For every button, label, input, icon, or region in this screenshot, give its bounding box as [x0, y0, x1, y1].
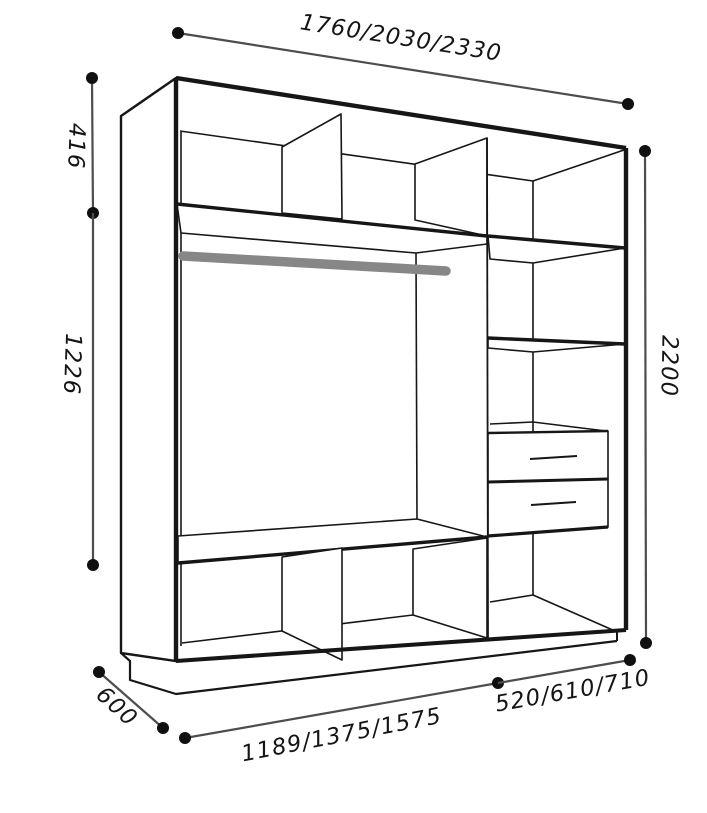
partition-front-edge — [487, 138, 488, 638]
drawer-1-front — [488, 431, 608, 482]
dim-dot — [86, 72, 98, 84]
drawer-top-shelf-edges — [490, 422, 606, 431]
diagram-canvas: 1760/2030/2330 416 1226 2200 600 — [0, 0, 707, 813]
hanging-rail — [183, 256, 446, 271]
dim-left-width-label: 1189/1375/1575 — [239, 703, 444, 767]
dim-width-label: 1760/2030/2330 — [298, 9, 503, 67]
drawer-2 — [488, 479, 608, 536]
dim-dot — [622, 98, 634, 110]
dim-depth-label: 600 — [91, 682, 143, 732]
bottom-divider-1 — [282, 548, 342, 660]
side-panel — [121, 78, 176, 661]
carcass-bottom-edge — [176, 630, 626, 661]
shelf-depth-edge — [533, 422, 606, 431]
dim-total-height: 2200 — [639, 145, 683, 649]
floor-back-edge-right — [490, 595, 533, 602]
bottom-divider-2 — [413, 538, 487, 638]
right-column-shelf-middle — [488, 338, 625, 352]
partition-back-edge — [416, 253, 417, 519]
dim-upper-height-label: 416 — [62, 123, 90, 170]
carcass-top-edge — [176, 78, 626, 148]
dim-width: 1760/2030/2330 — [172, 9, 634, 110]
dim-right-width-label: 520/610/710 — [493, 665, 652, 718]
floor-right-depth-edge — [533, 595, 615, 631]
shelf-underside — [488, 236, 625, 263]
wardrobe-dimension-diagram: 1760/2030/2330 416 1226 2200 600 — [0, 0, 707, 813]
dim-dot — [172, 27, 184, 39]
carcass-outline — [121, 78, 626, 694]
drawer-1 — [488, 431, 608, 482]
dim-left-width: 1189/1375/1575 — [179, 677, 504, 767]
dim-dot — [87, 559, 99, 571]
partition-upper-face — [415, 138, 487, 236]
dim-right-width: 520/610/710 — [493, 654, 652, 718]
dim-line — [645, 151, 646, 643]
dim-line — [92, 78, 93, 213]
top-divider — [282, 114, 342, 219]
right-panel-top-inner-edge — [533, 150, 624, 181]
dim-dot — [624, 654, 636, 666]
dim-dot — [639, 145, 651, 157]
dim-hanging-height-label: 1226 — [58, 333, 86, 396]
dim-hanging-height: 1226 — [58, 213, 99, 571]
dim-dot — [640, 637, 652, 649]
right-column-shelf-upper — [488, 236, 625, 263]
dim-dot — [157, 722, 169, 734]
dim-dot — [93, 666, 105, 678]
shelf-back-edge — [490, 422, 533, 424]
dim-upper-height: 416 — [62, 72, 99, 219]
back-wall-edges — [180, 131, 624, 646]
cabinet-drawing — [121, 78, 626, 694]
dim-dot — [179, 732, 191, 744]
dim-total-height-label: 2200 — [655, 335, 682, 398]
